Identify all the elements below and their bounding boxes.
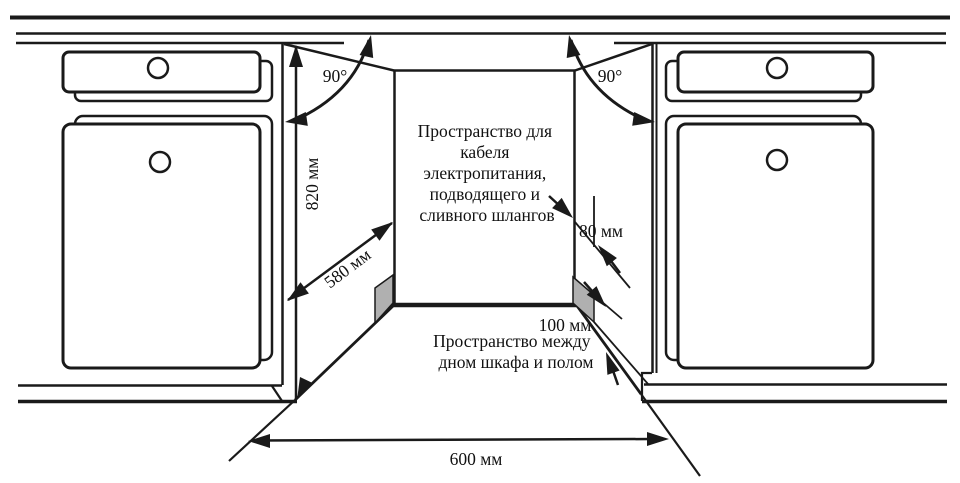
left-door-knob (150, 152, 170, 172)
right-door-knob (767, 150, 787, 170)
dimension-820mm (289, 45, 313, 400)
left-cabinet (63, 42, 283, 401)
countertop (10, 18, 950, 44)
label-580mm: 580 мм (320, 244, 374, 292)
diagram-canvas: 90° 90° 820 мм 580 мм Пространство для к… (0, 0, 960, 483)
dimension-600mm (248, 432, 669, 448)
label-angle-right: 90° (598, 66, 623, 86)
left-cabinet-foot (272, 386, 282, 401)
label-angle-left: 90° (323, 66, 348, 86)
cable-space-note: Пространство для кабеля электропитания, … (418, 121, 557, 225)
floor-lines (18, 385, 947, 402)
label-820mm: 820 мм (302, 158, 322, 211)
installation-diagram: 90° 90° 820 мм 580 мм Пространство для к… (0, 0, 960, 483)
right-drawer-knob (767, 58, 787, 78)
floor-space-note: Пространство между дном шкафа и полом (433, 331, 595, 372)
right-cabinet (642, 42, 873, 401)
label-80mm: 80 мм (579, 221, 623, 241)
left-drawer-knob (148, 58, 168, 78)
label-600mm: 600 мм (450, 449, 503, 469)
